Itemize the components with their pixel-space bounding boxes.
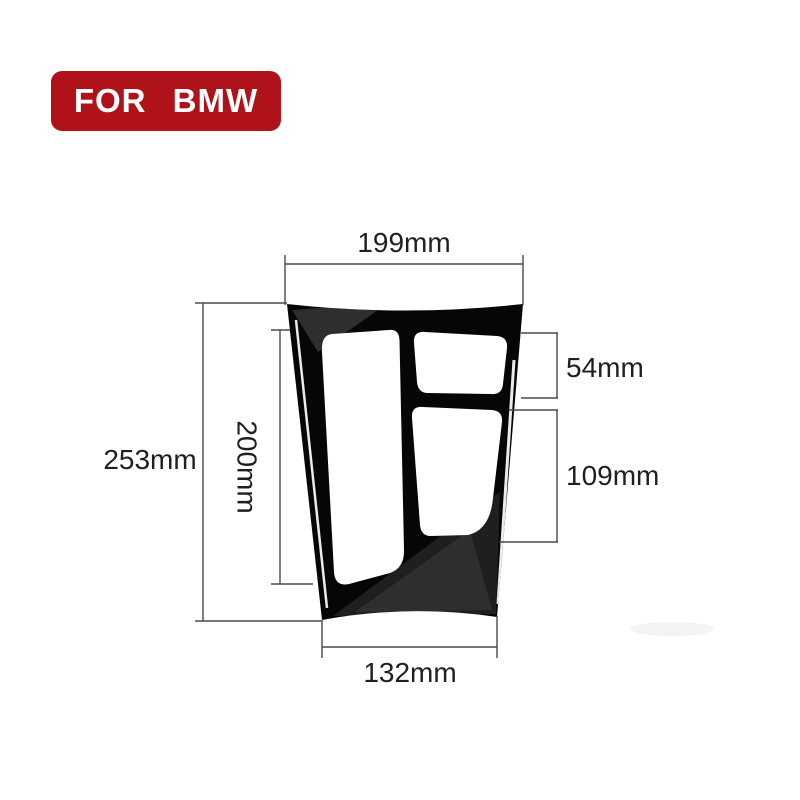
watermark-smudge (630, 622, 714, 636)
dim-lower-right-cutout: 109mm (499, 410, 659, 542)
dim-top-width: 199mm (285, 227, 523, 305)
upper-right-cutout (414, 332, 507, 394)
dim-upper-right-cutout: 54mm (521, 333, 644, 398)
dim-bottom-width: 132mm (322, 616, 497, 688)
lower-right-cutout (412, 407, 502, 536)
dim-label-inner-height: 200mm (232, 420, 263, 513)
dim-label-top-width: 199mm (357, 227, 450, 258)
dim-label-upper-right-cutout: 54mm (566, 352, 644, 383)
dim-label-lower-right-cutout: 109mm (566, 460, 659, 491)
dimension-diagram: 199mm 253mm 200mm 54mm 109mm (0, 0, 800, 800)
dim-label-overall-height: 253mm (103, 444, 196, 475)
product-image-canvas: FOR BMW 199mm (0, 0, 800, 800)
gear-shift-cutout (322, 330, 404, 585)
dim-overall-height: 253mm (103, 303, 322, 621)
dim-label-bottom-width: 132mm (363, 657, 456, 688)
